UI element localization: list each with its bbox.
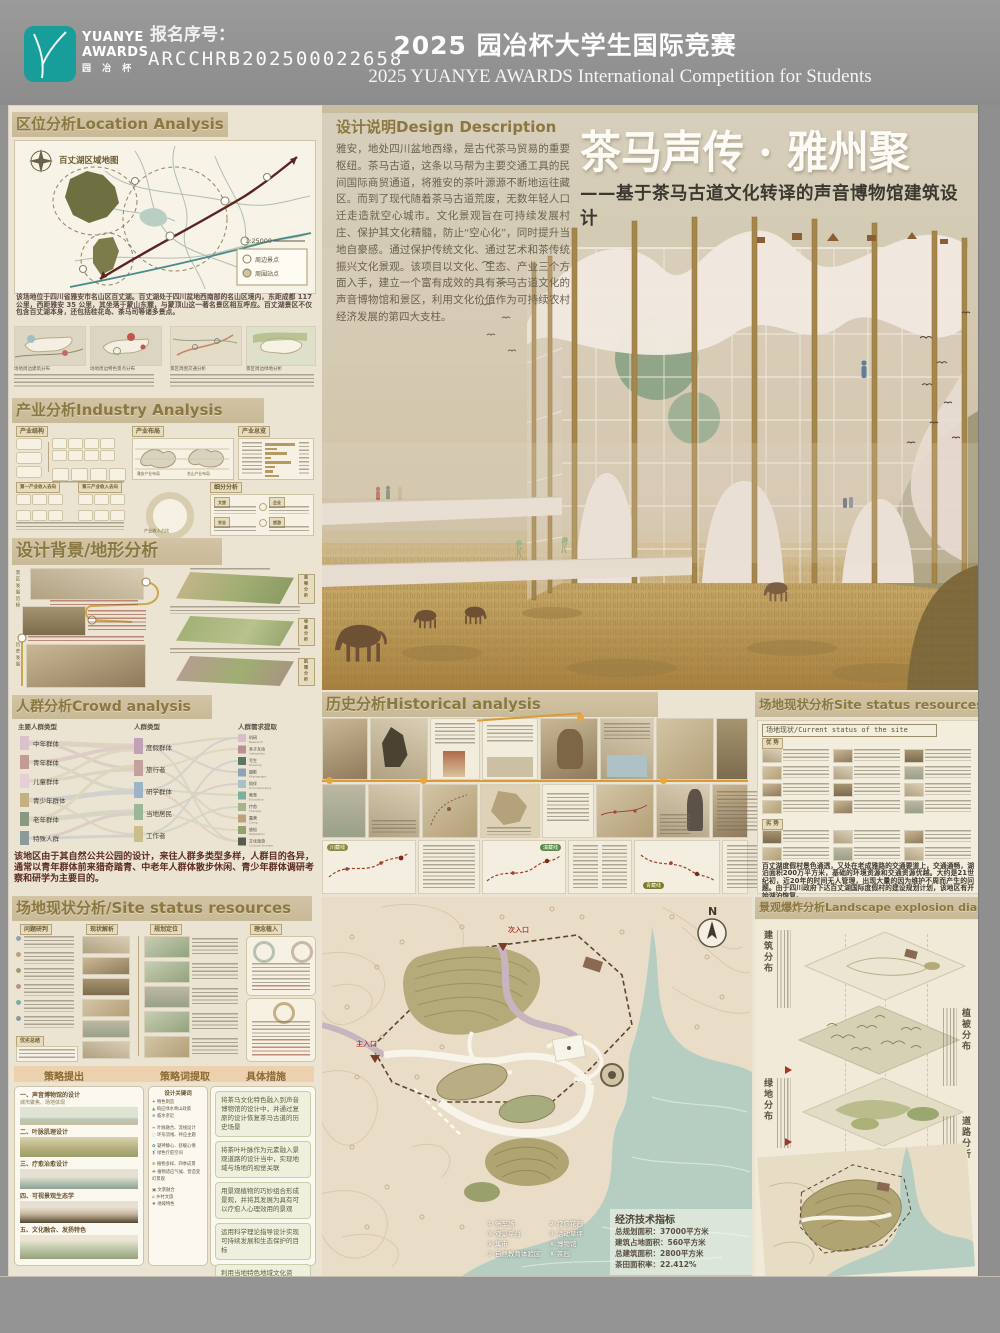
siteleft-photos — [82, 936, 130, 1060]
history-card — [540, 718, 598, 780]
indicators-title: 经济技术指标 — [615, 1211, 752, 1226]
entrance-main-label: 主入口 — [356, 1039, 377, 1049]
history-card — [322, 718, 368, 780]
timeline-axis — [322, 780, 748, 782]
route-pill: 青藏线 — [643, 882, 664, 889]
crowd-paragraph: 该地区由于其自然公共公园的设计，来往人群多类型多样，人群目的各异，通常以青年群体… — [14, 852, 314, 890]
measure-1: 将茶马文化特色融入到声音博物馆的设计中，并通过复原的设计恢复茶马古道的历史场景 — [215, 1091, 311, 1137]
location-map-graphic: 百丈湖区域地图 周边景点 周围站点 1:25000 — [15, 141, 313, 291]
history-card — [716, 718, 748, 780]
sankey-col-headers: 主要人群类型 人群类型 人群需求提取 — [18, 722, 278, 731]
svg-text:Education: Education — [249, 798, 264, 802]
legend-item: ⑤ 集市 — [487, 1239, 549, 1249]
logo-line3: 园 冶 杯 — [82, 62, 148, 77]
culture-icon: ▣ — [152, 1188, 156, 1193]
description-title: 设计说明Design Description — [336, 116, 556, 137]
status-cell — [904, 799, 973, 814]
strategy-4-image — [20, 1201, 138, 1223]
masterplan: N 次入口 主入口 ① 停车场② 疗愈花园 ③ 观景平台④ 活动草坪 ⑤ 集市⑥… — [322, 897, 752, 1276]
history-card — [368, 784, 420, 838]
minimap-1 — [14, 326, 86, 366]
route-map-card: 滇藏线 — [482, 840, 566, 894]
keyword-item: ≋ 临水亲近 — [152, 1113, 204, 1120]
keyword-item: ❖ 地域特色 — [152, 1201, 204, 1208]
segment-panel: 文旅 企业 农业 旅游 — [210, 494, 314, 536]
seasons-icon: ☘ — [152, 1170, 156, 1175]
history-timeline: 川藏线 滇藏线 青藏线 — [322, 718, 748, 894]
entrance-secondary-label: 次入口 — [508, 925, 529, 935]
svg-text:工作者: 工作者 — [146, 831, 166, 840]
history-card — [480, 784, 540, 838]
header-bar: YUANYE AWARDS 园 冶 杯 报名序号： ARCCHRB2025000… — [0, 0, 1000, 105]
strategy-1-title: 一、声音博物馆的设计 — [15, 1087, 143, 1099]
history-row-1 — [322, 718, 748, 780]
siteleft-col2-label: 现状解析 — [86, 924, 118, 935]
history-card — [422, 784, 478, 838]
keyword-item: ◌ 环形流线、呼应主题 — [152, 1132, 204, 1139]
keyword-item: ❋ 植物多样、四季成景 — [152, 1161, 204, 1168]
timeline-dot — [326, 777, 333, 784]
competition-title-en: 2025 YUANYE AWARDS International Competi… — [310, 66, 930, 88]
status-cell — [904, 846, 973, 861]
route-pill: 滇藏线 — [540, 844, 561, 851]
keyword-item: ☘ 植物适应气候、营造变幻景观 — [152, 1169, 204, 1183]
yuanye-logo-icon — [24, 26, 76, 82]
status-cell — [762, 765, 831, 780]
section-location-header: 区位分析Location Analysis — [12, 112, 228, 137]
measure-4: 运用科学理论指导设计实现可持续发展和生态保护的目标 — [215, 1223, 311, 1260]
text-lines — [190, 568, 270, 571]
measure-3: 用景观植物的巧妙组合形成景观，并将其发展为具有可以疗愈人心理效用的景观 — [215, 1182, 311, 1219]
status-cell — [762, 782, 831, 797]
minimap-caption-1: 场地周边建筑分布 — [14, 366, 80, 371]
history-row-2 — [322, 784, 748, 838]
status-cell — [833, 748, 902, 763]
map-scale: 1:25000 — [245, 237, 272, 245]
center-top-strip — [322, 105, 978, 113]
text-lines — [50, 600, 138, 605]
entrance-secondary-marker — [498, 943, 508, 951]
location-minimaps: 场地周边建筑分布 场地周边特色景点分布 景区周围交通分析 景区周边绿地分析 — [14, 326, 314, 392]
siteright-panel: 场地现状/Current status of the site 优 势 劣 势 — [757, 720, 980, 894]
minimap-caption-4: 景区周边绿地分析 — [246, 366, 314, 371]
section-background-header: 设计背景/地形分析 — [12, 538, 222, 565]
text-lines — [170, 374, 314, 388]
layer-label-1: 建筑分布 — [761, 930, 774, 1000]
keyword-item: ✿ 凝神静心、舒缓心情 — [152, 1143, 204, 1150]
water-icon: ≋ — [152, 1114, 156, 1119]
segment-label: 细分分析 — [210, 482, 242, 493]
status-cell — [904, 782, 973, 797]
status-cell — [833, 782, 902, 797]
history-card — [656, 784, 710, 838]
svg-text:当地居民: 当地居民 — [146, 809, 172, 818]
svg-text:Drawing: Drawing — [249, 763, 262, 767]
svg-text:主要人群类型: 主要人群类型 — [18, 722, 58, 731]
competition-poster-page: YUANYE AWARDS 园 冶 杯 报名序号： ARCCHRB2025000… — [0, 0, 1000, 1333]
svg-text:人群需求提取: 人群需求提取 — [238, 722, 278, 731]
mountain-icon: ▲ — [152, 1107, 155, 1112]
income-icons — [16, 494, 136, 532]
keyword-item: ✦ 特色制造 — [152, 1099, 204, 1106]
industry-layout-label: 产业布局 — [132, 426, 164, 437]
marker-triangle — [785, 1138, 792, 1146]
keyword-item: ▣ 文景融合 — [152, 1187, 204, 1194]
strategy-keywords: 设计关键词 ✦ 特色制造 ▲ 响应绿水青山政策 ≋ 临水亲近 ❧ 叶脉融合、流线… — [148, 1086, 208, 1266]
status-cell — [762, 829, 831, 844]
keyword-item: ▲ 响应绿水青山政策 — [152, 1106, 204, 1113]
legend-item: ③ 观景平台 — [487, 1229, 549, 1239]
history-card — [542, 784, 594, 838]
registration-label: 报名序号： — [150, 20, 235, 45]
logo-y-glyph — [24, 26, 76, 82]
svg-text:Accompanying: Accompanying — [249, 786, 271, 790]
siteleft-grid: 问题研判 现状解析 规划定位 理念植入 优劣总结 — [14, 924, 314, 1062]
status-cell — [904, 829, 973, 844]
siteleft-col3-label: 规划定位 — [150, 924, 182, 935]
status-cell — [762, 799, 831, 814]
keywords-title: 设计关键词 — [149, 1087, 207, 1097]
description-paragraph: 雅安，地处四川盆地西缘，是古代茶马贸易的重要枢纽。茶马古道，这条以马帮为主要交通… — [336, 142, 570, 354]
industry-structure-diagram — [16, 438, 126, 484]
strategy-proposals: 一、声音博物馆的设计 城市聚焦、场地体现 二、叶脉肌理设计 三、疗愈治愈设计 四… — [14, 1086, 144, 1266]
sparkle-icon: ✦ — [152, 1100, 156, 1105]
svg-text:度假群体: 度假群体 — [146, 743, 173, 752]
map-legend-box — [237, 249, 307, 285]
tea-terrace — [485, 1138, 569, 1186]
map-title: 百丈湖区域地图 — [59, 155, 119, 166]
siteleft-positioning — [136, 936, 242, 1060]
status-cell — [904, 765, 973, 780]
svg-text:旅行者: 旅行者 — [146, 765, 166, 774]
entrance-main-marker — [370, 1055, 380, 1063]
strategy-2-title: 二、叶脉肌理设计 — [15, 1126, 143, 1136]
status-cell — [833, 765, 902, 780]
logo-line2: AWARDS — [82, 45, 148, 60]
svg-text:青年群体: 青年群体 — [33, 758, 60, 767]
strategy-2-image — [20, 1137, 138, 1157]
strategy-header-2: 策略词提取 — [160, 1068, 210, 1083]
legend-item: ⑧ 茶园 — [549, 1249, 570, 1259]
summary-box — [16, 1046, 78, 1062]
history-card — [600, 718, 654, 780]
industry-overview-bars — [238, 438, 314, 480]
indicator-line: 总规划面积：37000平方米 — [615, 1226, 752, 1237]
history-text-card — [418, 840, 480, 894]
layer-vegetation — [791, 1000, 963, 1082]
svg-text:Photograph: Photograph — [249, 775, 266, 779]
logo-line1: YUANYE — [82, 30, 148, 45]
section-crowd-header: 人群分析Crowd analysis — [12, 695, 212, 719]
timeline-dot — [660, 777, 667, 784]
terrain-stack: 高程分析 坡度分析 肌理分析 — [170, 568, 314, 690]
industry-overview-label: 产业总览 — [238, 426, 270, 437]
status-cell — [833, 829, 902, 844]
explosion-panel: 建筑分布 植被分布 绿地分布 道路分析 — [755, 920, 978, 1276]
competition-title-cn: 2025 园冶杯大学生国际竞赛 — [330, 26, 800, 62]
timeline-dot — [420, 777, 427, 784]
minimap-2 — [90, 326, 162, 366]
section-history-header: 历史分析Historical analysis — [322, 692, 658, 717]
svg-text:Therapy: Therapy — [248, 809, 262, 813]
keywords-list: ✦ 特色制造 ▲ 响应绿水青山政策 ≋ 临水亲近 ❧ 叶脉融合、流线设计 ◌ 环… — [149, 1097, 207, 1211]
history-card — [712, 784, 748, 838]
indicators-box: 经济技术指标 总规划面积：37000平方米 建筑占地面积：560平方米 总建筑面… — [610, 1209, 752, 1275]
route-map-card: 川藏线 — [322, 840, 416, 894]
svg-text:研学群体: 研学群体 — [146, 787, 173, 796]
ring-icon: ◌ — [152, 1133, 156, 1138]
strategy-1-image — [20, 1107, 138, 1125]
right-margin-band — [978, 105, 1000, 1276]
terrain-label-1: 高程分析 — [298, 574, 315, 604]
text-lines — [170, 648, 300, 655]
svg-text:中年群体: 中年群体 — [33, 739, 60, 748]
siteright-paragraph: 百丈湖度假村景色通透，又处在老成雅路的交通要道上，交通通畅，湖泊面积200万平方… — [762, 863, 974, 891]
svg-text:Interaction: Interaction — [249, 752, 265, 756]
background-content: 景区发展历程 历史发展 高程分析 坡度分析 肌理分析 — [14, 568, 314, 690]
minimap-3 — [170, 326, 242, 366]
svg-text:Relaxation: Relaxation — [249, 832, 265, 836]
leaf-icon: ❧ — [152, 1126, 156, 1131]
svg-text:N: N — [708, 905, 717, 918]
layer-label-3: 绿地分布 — [761, 1078, 774, 1142]
measure-2: 将茶叶叶脉作为元素融入景观道路的设计当中，实现地域与场地的视觉关联 — [215, 1141, 311, 1178]
layer-label-2: 植被分布 — [959, 1008, 972, 1072]
main-title: 茶马声传 · 雅州聚 — [580, 116, 980, 181]
strategy-5-image — [20, 1235, 138, 1259]
svg-text:青少年群体: 青少年群体 — [33, 796, 66, 805]
crowd-sankey-chart: 主要人群类型 人群类型 人群需求提取 中年群体 青年群体 儿童群体 青少年群体 … — [14, 720, 314, 852]
layer-buildings — [797, 926, 969, 1008]
marker-triangle — [785, 1066, 792, 1074]
text-lines — [14, 374, 154, 388]
status-cell — [833, 799, 902, 814]
text-lines — [170, 606, 300, 614]
timeline-dot — [577, 714, 584, 721]
location-paragraph: 该场地位于四川省雅安市名山区百丈湖。百丈湖处于四川盆地西南部的名山区境内，东距成… — [16, 294, 312, 324]
legend-label-2: 周围站点 — [255, 270, 279, 278]
submap-label-2: 名山产业布局 — [187, 471, 210, 477]
status-cell — [762, 748, 831, 763]
indicator-line: 总建筑面积：2800平方米 — [615, 1248, 752, 1259]
strategy-header-1: 策略提出 — [44, 1068, 84, 1083]
sankey-links — [29, 738, 238, 841]
section-explosion-header: 景观爆炸分析Landscape explosion dia- — [755, 897, 982, 919]
plant-icon: ❋ — [152, 1162, 156, 1167]
submap-label-1: 雅安产业布局 — [137, 471, 160, 477]
logo-wordmark: YUANYE AWARDS 园 冶 杯 — [82, 30, 148, 77]
status-cell — [762, 846, 831, 861]
strategy-5-title: 五、文化融合、发扬特色 — [15, 1224, 143, 1234]
svg-text:儿童群体: 儿童群体 — [33, 777, 60, 786]
legend-item: ① 停车场 — [487, 1219, 549, 1229]
siteleft-col1-label: 问题研判 — [20, 924, 52, 935]
legend-item: ⑥ 博物馆 — [549, 1239, 576, 1249]
income3-label: 第三产业收入去向 — [78, 482, 122, 493]
history-card — [596, 784, 654, 838]
legend-item: ② 疗愈花园 — [549, 1219, 583, 1229]
minimap-4 — [246, 326, 316, 366]
route-map-card: 青藏线 — [634, 840, 720, 894]
income1-label: 第一产业收入去向 — [16, 482, 60, 493]
strategy-3-title: 三、疗愈治愈设计 — [15, 1158, 143, 1168]
section-siteleft-header: 场地现状分析/Site status resources — [12, 896, 312, 921]
legend-label-1: 周边景点 — [255, 256, 279, 264]
donut-label: 产业收入占比 — [144, 528, 169, 534]
main-subtitle: ——基于茶马古道文化转译的声音博物馆建筑设计 — [580, 180, 972, 230]
keyword-item: ❡ 绿色疗愈空间 — [152, 1150, 204, 1157]
explosion-base-plan — [757, 1143, 975, 1281]
industry-content: 产业结构 产业布局 产业总览 雅安产业布局 名山产业布局 — [14, 426, 314, 534]
text-lines — [88, 610, 146, 630]
siteleft-problems — [16, 936, 76, 1032]
svg-text:Cultural tourism: Cultural tourism — [249, 844, 273, 848]
space-icon: ❡ — [152, 1151, 156, 1156]
legend-item: ④ 活动草坪 — [549, 1229, 583, 1239]
strategy-4-title: 四、可视景观生态学 — [15, 1190, 143, 1200]
strategy-3-image — [20, 1169, 138, 1189]
cons-grid — [762, 829, 975, 861]
sankey-col3-nodes: 科研Research 亲子互动Interaction 写生Drawing 摄影P… — [238, 734, 273, 848]
status-cell — [833, 846, 902, 861]
history-card — [430, 718, 480, 780]
bottom-margin-band — [0, 1276, 1000, 1333]
heart-icon: ✿ — [152, 1144, 156, 1149]
pros-grid — [762, 748, 975, 814]
history-text-card — [568, 840, 632, 894]
strategy-header-3: 具体措施 — [246, 1068, 286, 1083]
figure-blue — [861, 360, 866, 378]
indicator-line: 建筑占地面积：560平方米 — [615, 1237, 752, 1248]
sankey-col1-nodes: 中年群体 青年群体 儿童群体 青少年群体 老年群体 特殊人群 — [20, 736, 66, 845]
status-cell — [904, 748, 973, 763]
indicator-line: 茶田面积率：22.412% — [615, 1259, 752, 1270]
svg-text:特殊人群: 特殊人群 — [33, 834, 60, 843]
industry-layout-maps: 雅安产业布局 名山产业布局 — [132, 438, 234, 480]
terrain-map-slope — [176, 616, 294, 646]
route-pill: 川藏线 — [327, 844, 348, 851]
region-icon: ❖ — [152, 1202, 156, 1207]
location-map: 百丈湖区域地图 周边景点 周围站点 1:25000 — [14, 140, 316, 294]
industry-structure-label: 产业结构 — [16, 426, 48, 437]
siteleft-col4-label: 理念植入 — [250, 924, 282, 935]
history-row-3: 川藏线 滇藏线 青藏线 — [322, 840, 748, 894]
village-icon: ⌂ — [152, 1195, 155, 1200]
terrain-map-texture — [176, 656, 294, 686]
keyword-item: ❧ 叶脉融合、流线设计 — [152, 1125, 204, 1132]
svg-text:Camp: Camp — [249, 821, 258, 825]
minimap-caption-3: 景区周围交通分析 — [170, 366, 240, 371]
legend-item: ⑦ 自然教育体验区 — [487, 1249, 549, 1259]
terrain-label-2: 坡度分析 — [298, 618, 315, 646]
history-text-card — [722, 840, 748, 894]
history-card — [322, 784, 366, 838]
section-industry-header: 产业分析Industry Analysis — [12, 398, 264, 423]
strategy-measures: 将茶马文化特色融入到声音博物馆的设计中，并通过复原的设计恢复茶马古道的历史场景 … — [210, 1086, 316, 1266]
siteleft-concept — [246, 936, 314, 1060]
svg-text:Research: Research — [249, 740, 263, 744]
plan-legend: ① 停车场② 疗愈花园 ③ 观景平台④ 活动草坪 ⑤ 集市⑥ 博物馆 ⑦ 自然教… — [487, 1219, 617, 1259]
svg-text:人群类型: 人群类型 — [134, 722, 161, 731]
section-siteright-header: 场地现状分析Site status resources — [755, 692, 982, 717]
minimap-caption-2: 场地周边特色景点分布 — [90, 366, 160, 371]
svg-text:老年群体: 老年群体 — [33, 815, 60, 824]
siteright-bar: 场地现状/Current status of the site — [762, 724, 937, 737]
text-lines — [777, 930, 791, 1008]
history-card — [656, 718, 714, 780]
strategy-header-band: 策略提出 策略词提取 具体措施 — [14, 1066, 314, 1082]
history-card — [370, 718, 428, 780]
terrain-label-3: 肌理分析 — [298, 658, 315, 686]
keyword-item: ⌂ 乡村文旅 — [152, 1194, 204, 1201]
history-card — [482, 718, 538, 780]
terrain-map-elevation — [176, 572, 294, 604]
text-lines — [28, 636, 144, 643]
strategy-1-sub: 城市聚焦、场地体现 — [15, 1099, 143, 1106]
